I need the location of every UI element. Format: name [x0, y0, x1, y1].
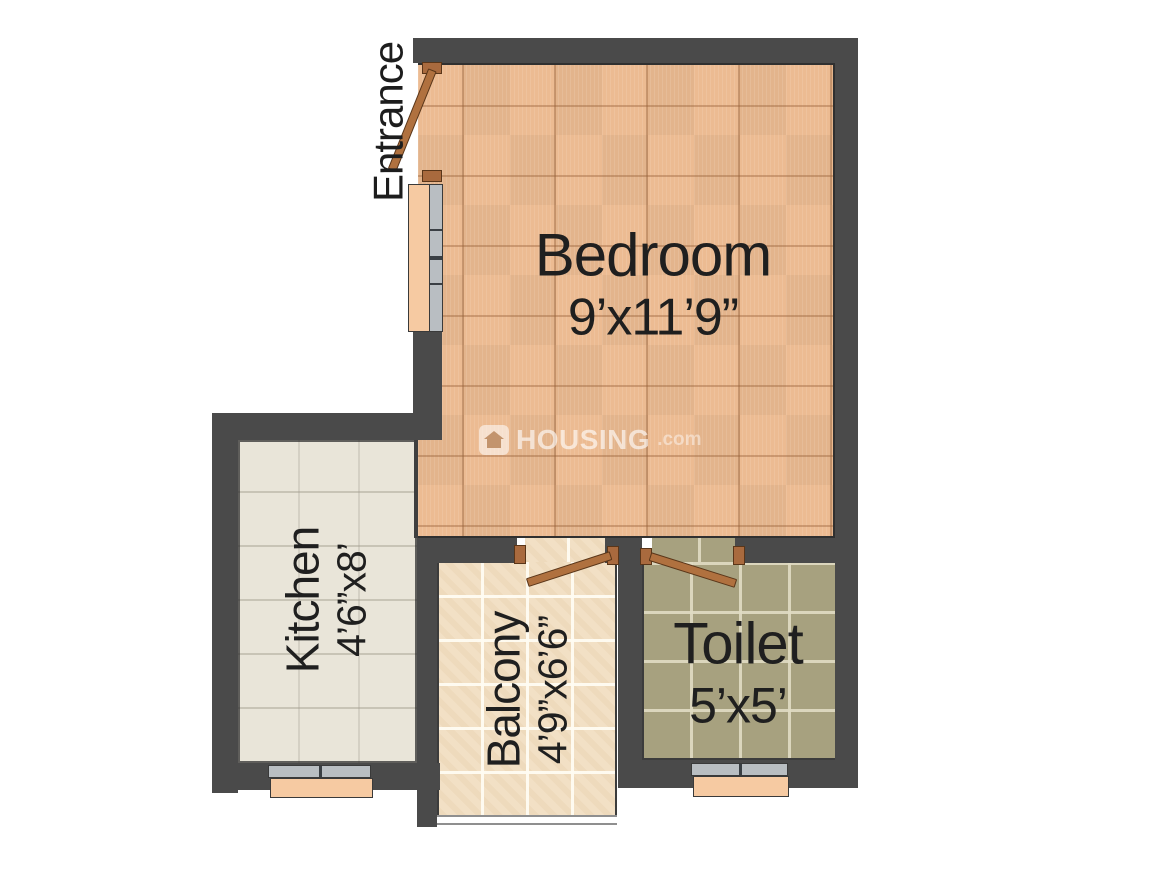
entrance-label: Entrance [364, 42, 411, 202]
entrance-door-jamb-bottom [422, 170, 442, 182]
wall-top [413, 38, 858, 63]
balcony-railing [437, 815, 617, 825]
wall-balcony-left [417, 538, 437, 827]
balcony-dims: 4’9”x6’6” [530, 612, 576, 769]
wall-bedroom-bottom-right [735, 538, 835, 563]
entrance-text: Entrance [364, 42, 411, 202]
wall-kitchen-top [212, 413, 442, 440]
toilet-label: Toilet 5’x5’ [673, 613, 802, 734]
bedroom-name: Bedroom [535, 221, 771, 288]
bedroom-window-sill [408, 184, 431, 332]
balcony-name: Balcony [478, 612, 530, 769]
wall-right [835, 38, 858, 788]
balcony-label: Balcony 4’9”x6’6” [478, 612, 575, 769]
kitchen-label: Kitchen 4’6”x8’ [277, 527, 374, 673]
kitchen-bedroom-threshold-line [414, 440, 418, 538]
kitchen-window [268, 765, 371, 778]
floor-plan: Bedroom 9’x11’9” Kitchen 4’6”x8’ Balcony… [0, 0, 1160, 870]
toilet-window [691, 763, 788, 776]
bedroom-dims: 9’x11’9” [535, 288, 771, 346]
bedroom-window [429, 184, 443, 332]
watermark-tld: .com [657, 429, 701, 451]
watermark-brand: HOUSING [516, 424, 650, 456]
kitchen-name: Kitchen [277, 527, 329, 673]
housing-logo-roof [484, 431, 504, 439]
wall-balcony-toilet-divider [618, 538, 642, 788]
wall-kitchen-left [212, 413, 238, 793]
toilet-dims: 5’x5’ [673, 677, 802, 733]
housing-logo-icon [479, 425, 509, 455]
kitchen-window-sill [270, 778, 373, 798]
balcony-door-jamb-left [514, 545, 526, 564]
bedroom-label: Bedroom 9’x11’9” [535, 221, 771, 346]
toilet-window-sill [693, 776, 789, 797]
toilet-name: Toilet [673, 613, 802, 678]
watermark: HOUSING .com [479, 424, 702, 456]
kitchen-dims: 4’6”x8’ [329, 527, 375, 673]
housing-logo-base [487, 439, 501, 448]
toilet-door-jamb-right [733, 546, 745, 565]
